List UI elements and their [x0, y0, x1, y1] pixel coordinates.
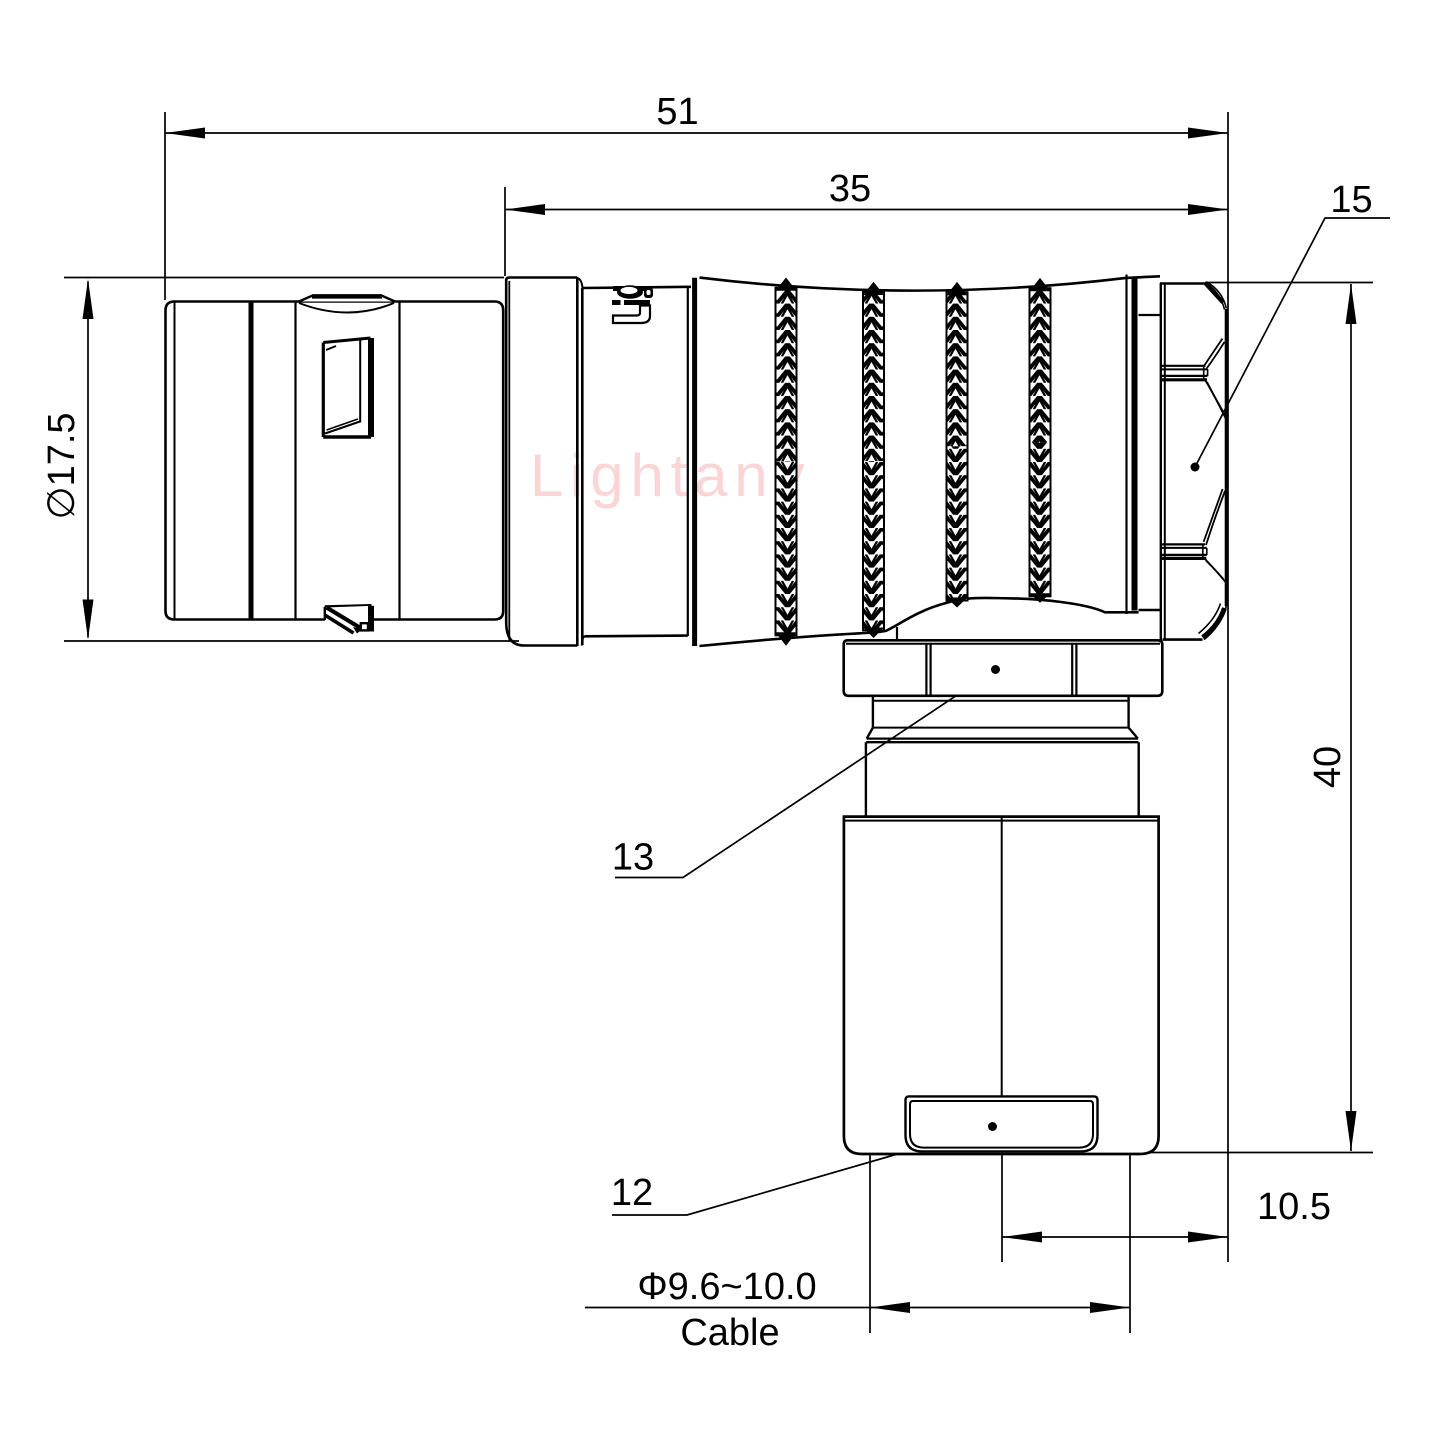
svg-text:12: 12: [611, 1172, 653, 1214]
svg-text:∅17.5: ∅17.5: [41, 412, 83, 519]
svg-text:40: 40: [1307, 746, 1349, 788]
svg-text:15: 15: [1330, 179, 1372, 221]
svg-text:10.5: 10.5: [1257, 1186, 1331, 1228]
svg-text:Φ9.6~10.0: Φ9.6~10.0: [637, 1266, 816, 1308]
svg-text:51: 51: [656, 91, 698, 133]
svg-text:35: 35: [829, 168, 871, 210]
svg-text:13: 13: [612, 837, 654, 879]
svg-text:Cable: Cable: [680, 1312, 779, 1354]
svg-text:Lightany: Lightany: [530, 442, 811, 509]
